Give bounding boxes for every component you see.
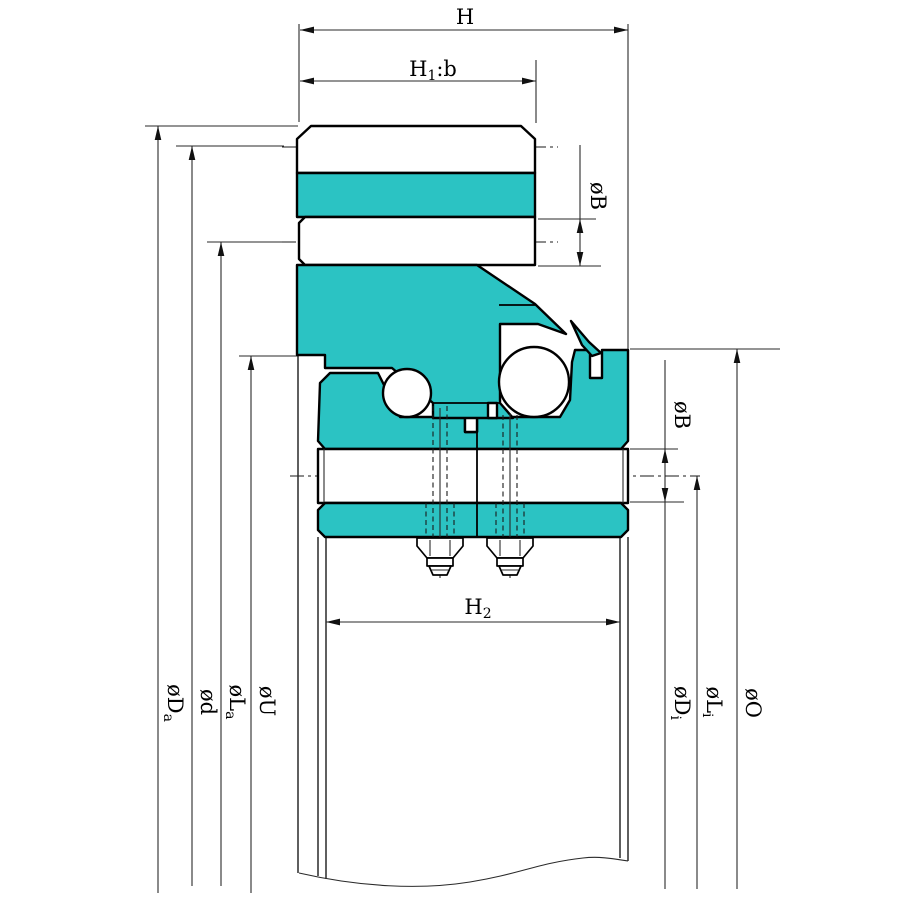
ball-right [499, 347, 569, 417]
grease-fitting-right [487, 538, 533, 575]
outer-ring-hole-band [299, 217, 535, 265]
label-phi-di: øDi [667, 686, 694, 720]
label-phi-li: øLi [699, 686, 726, 718]
grease-fitting-left [417, 538, 463, 575]
label-phi-da: øDa [160, 684, 187, 722]
label-phi-u: øU [255, 686, 279, 716]
label-h: H [456, 5, 474, 29]
ball-left [383, 369, 431, 417]
label-phi-b-top: øB [586, 182, 610, 210]
top-flange-band [297, 126, 535, 173]
label-phi-d: ød [196, 689, 220, 715]
outer-ring-band-a [297, 173, 535, 217]
label-phi-la: øLa [222, 685, 249, 720]
label-phi-o: øO [741, 688, 765, 718]
inner-ring-bolt-band [318, 449, 628, 503]
drawing-canvas: H H1:b H2 øB øB øDa ød øLa øU øDi øLi øO [0, 0, 900, 900]
label-phi-b-right: øB [670, 401, 694, 429]
seal-gap-notch [488, 403, 497, 418]
inner-ring-lower [318, 503, 628, 537]
bearing-cross-section-drawing: H H1:b H2 øB øB øDa ød øLa øU øDi øLi øO [0, 0, 900, 900]
label-h2: H2 [464, 595, 491, 622]
break-line [299, 857, 628, 886]
label-h1b: H1:b [409, 57, 457, 84]
